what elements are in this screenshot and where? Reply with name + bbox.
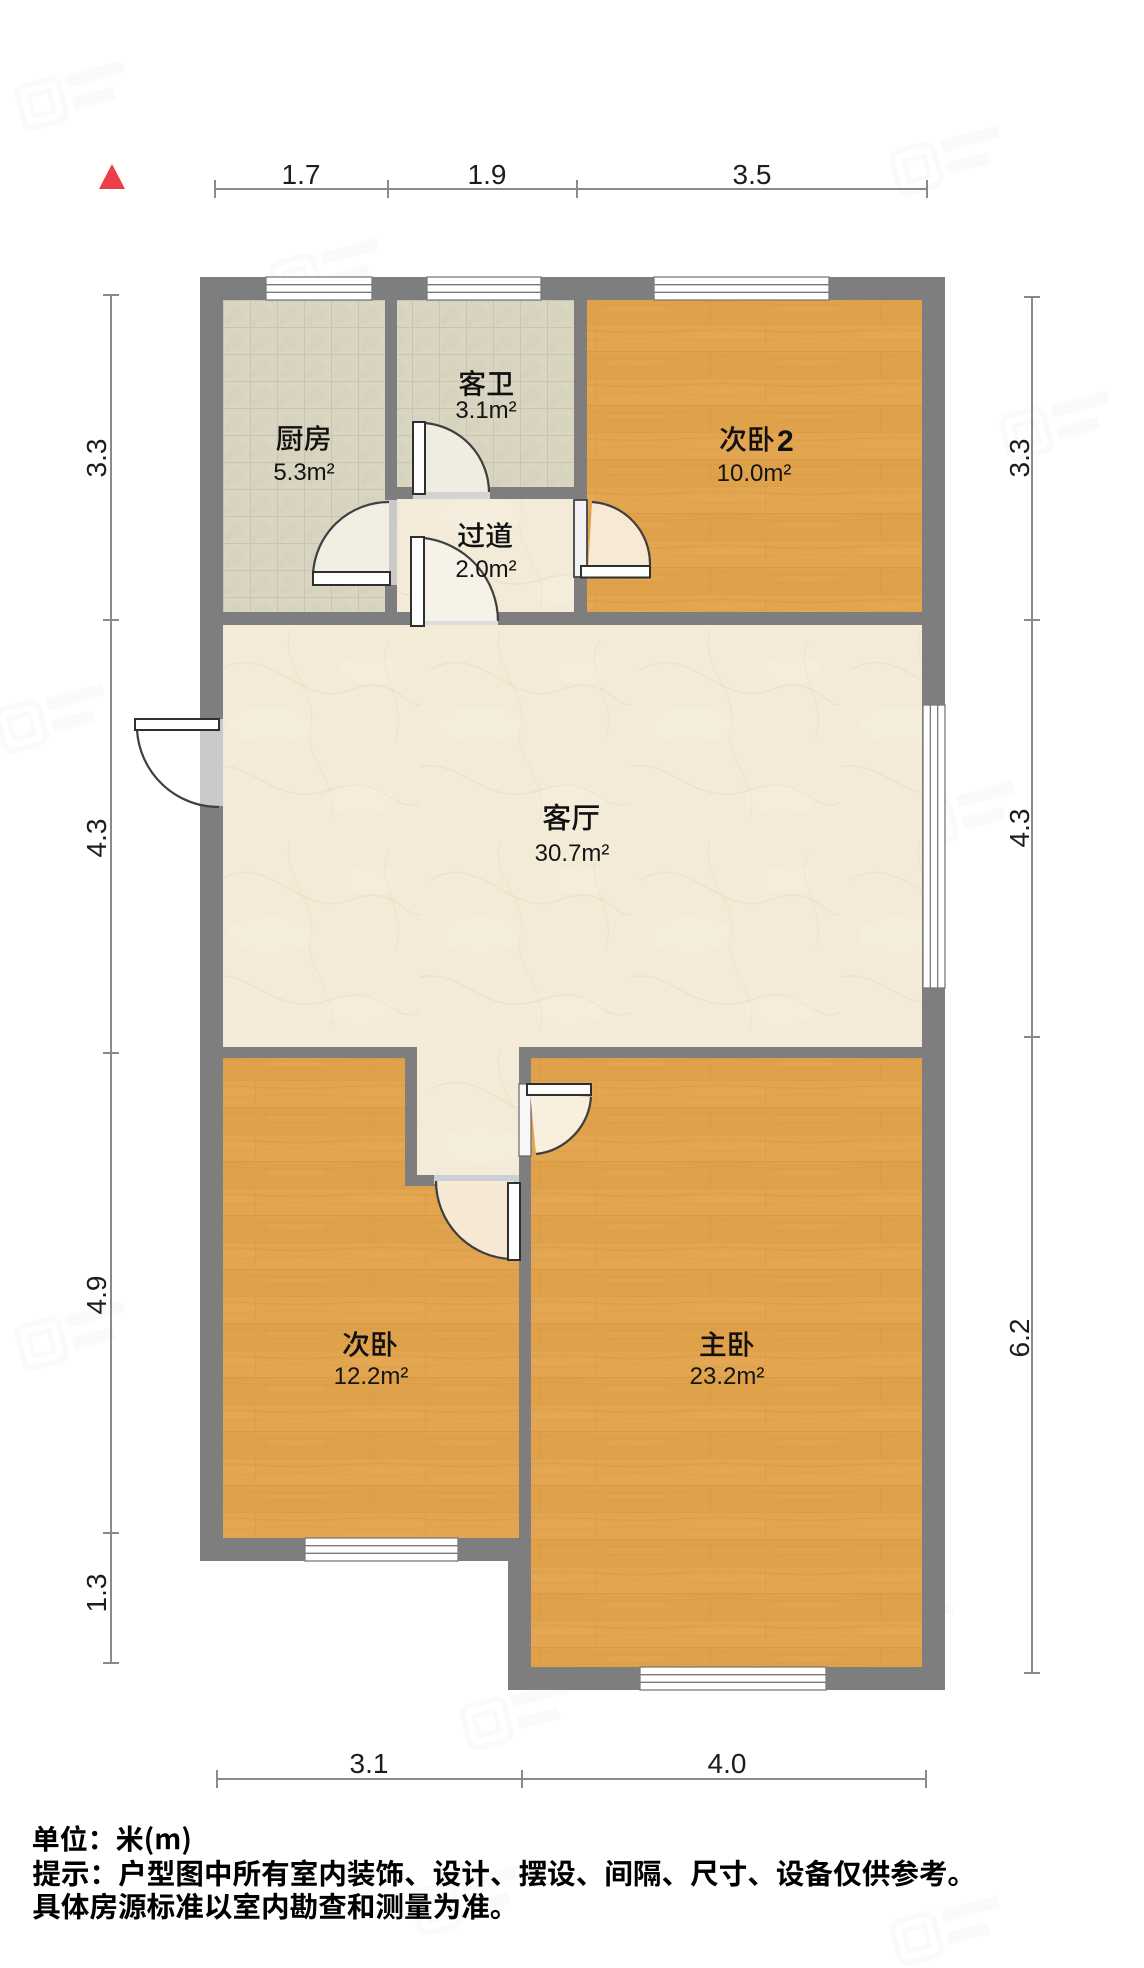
svg-text:3.3: 3.3 — [81, 439, 112, 478]
svg-text:2: 2 — [777, 425, 794, 458]
svg-text:1.3: 1.3 — [81, 1574, 112, 1613]
svg-text:4.3: 4.3 — [81, 819, 112, 858]
svg-text:12.2m²: 12.2m² — [334, 1363, 409, 1390]
svg-text:6.2: 6.2 — [1004, 1319, 1035, 1358]
svg-text:5.3m²: 5.3m² — [273, 459, 334, 486]
svg-text:4.0: 4.0 — [708, 1748, 747, 1779]
svg-text:4.9: 4.9 — [81, 1276, 112, 1315]
svg-text:3.5: 3.5 — [733, 159, 772, 190]
svg-text:3.1m²: 3.1m² — [455, 397, 516, 424]
svg-text:10.0m²: 10.0m² — [717, 460, 792, 487]
svg-text:1.9: 1.9 — [468, 159, 507, 190]
svg-text:2.0m²: 2.0m² — [455, 556, 516, 583]
svg-text:30.7m²: 30.7m² — [535, 840, 610, 867]
svg-text:4.3: 4.3 — [1004, 809, 1035, 848]
svg-text:23.2m²: 23.2m² — [690, 1363, 765, 1390]
svg-text:3.3: 3.3 — [1004, 439, 1035, 478]
svg-text:1.7: 1.7 — [282, 159, 321, 190]
svg-text:3.1: 3.1 — [350, 1748, 389, 1779]
